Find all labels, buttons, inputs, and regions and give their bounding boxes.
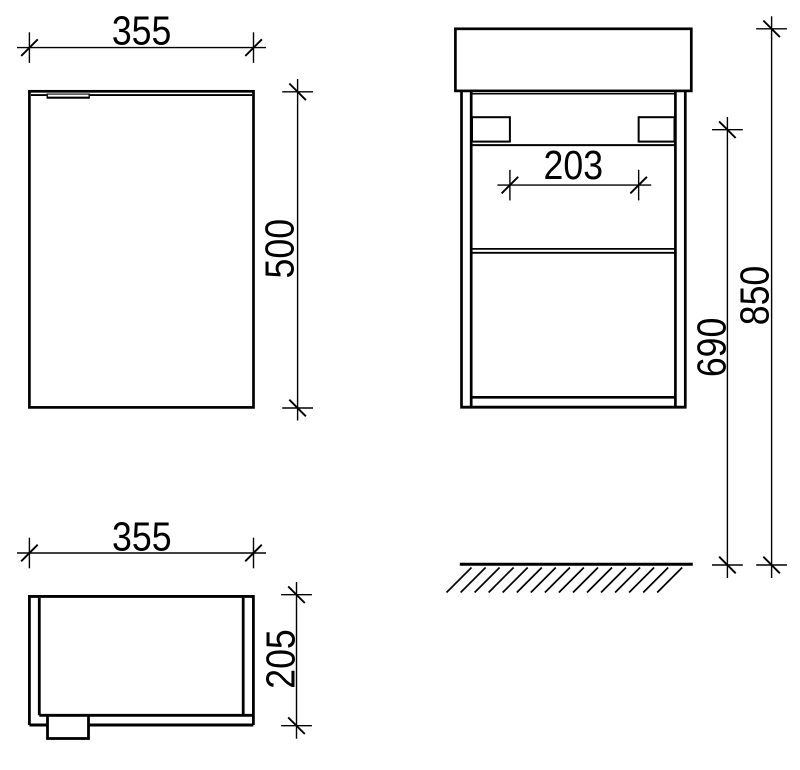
svg-text:203: 203: [544, 142, 604, 188]
svg-text:205: 205: [257, 629, 303, 689]
svg-text:500: 500: [256, 219, 302, 279]
svg-text:850: 850: [732, 266, 778, 326]
svg-text:355: 355: [112, 8, 172, 54]
svg-text:355: 355: [112, 513, 172, 559]
svg-text:690: 690: [688, 318, 734, 378]
